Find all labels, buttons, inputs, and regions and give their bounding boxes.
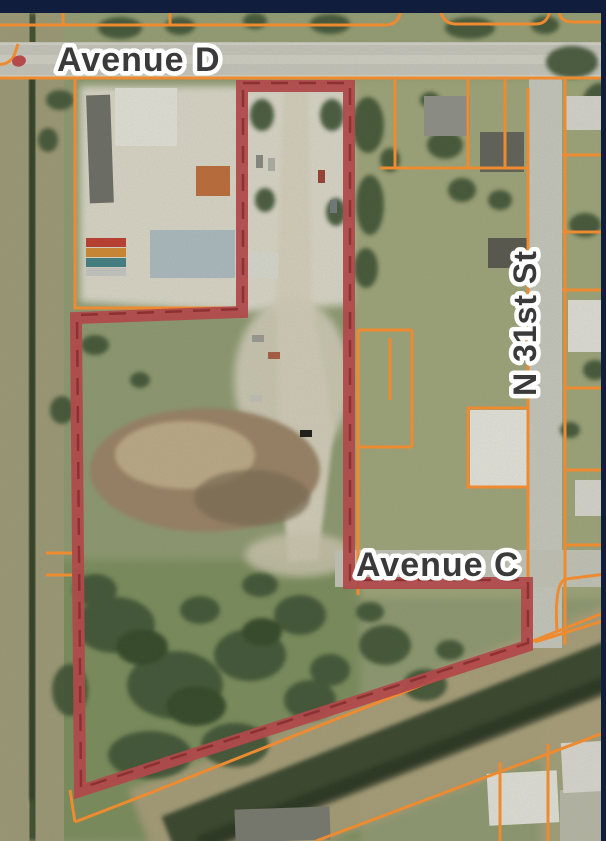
street-label-avenue-c: Avenue C bbox=[356, 546, 520, 584]
street-label-avenue-d: Avenue D bbox=[57, 41, 221, 79]
window-right-edge bbox=[601, 0, 606, 841]
street-label-n-31st-st: N 31st St bbox=[507, 250, 543, 396]
map-viewport[interactable]: Avenue D Avenue C N 31st St bbox=[0, 0, 606, 841]
aerial-map-canvas[interactable]: Avenue D Avenue C N 31st St bbox=[0, 0, 606, 841]
window-top-edge bbox=[0, 0, 606, 13]
